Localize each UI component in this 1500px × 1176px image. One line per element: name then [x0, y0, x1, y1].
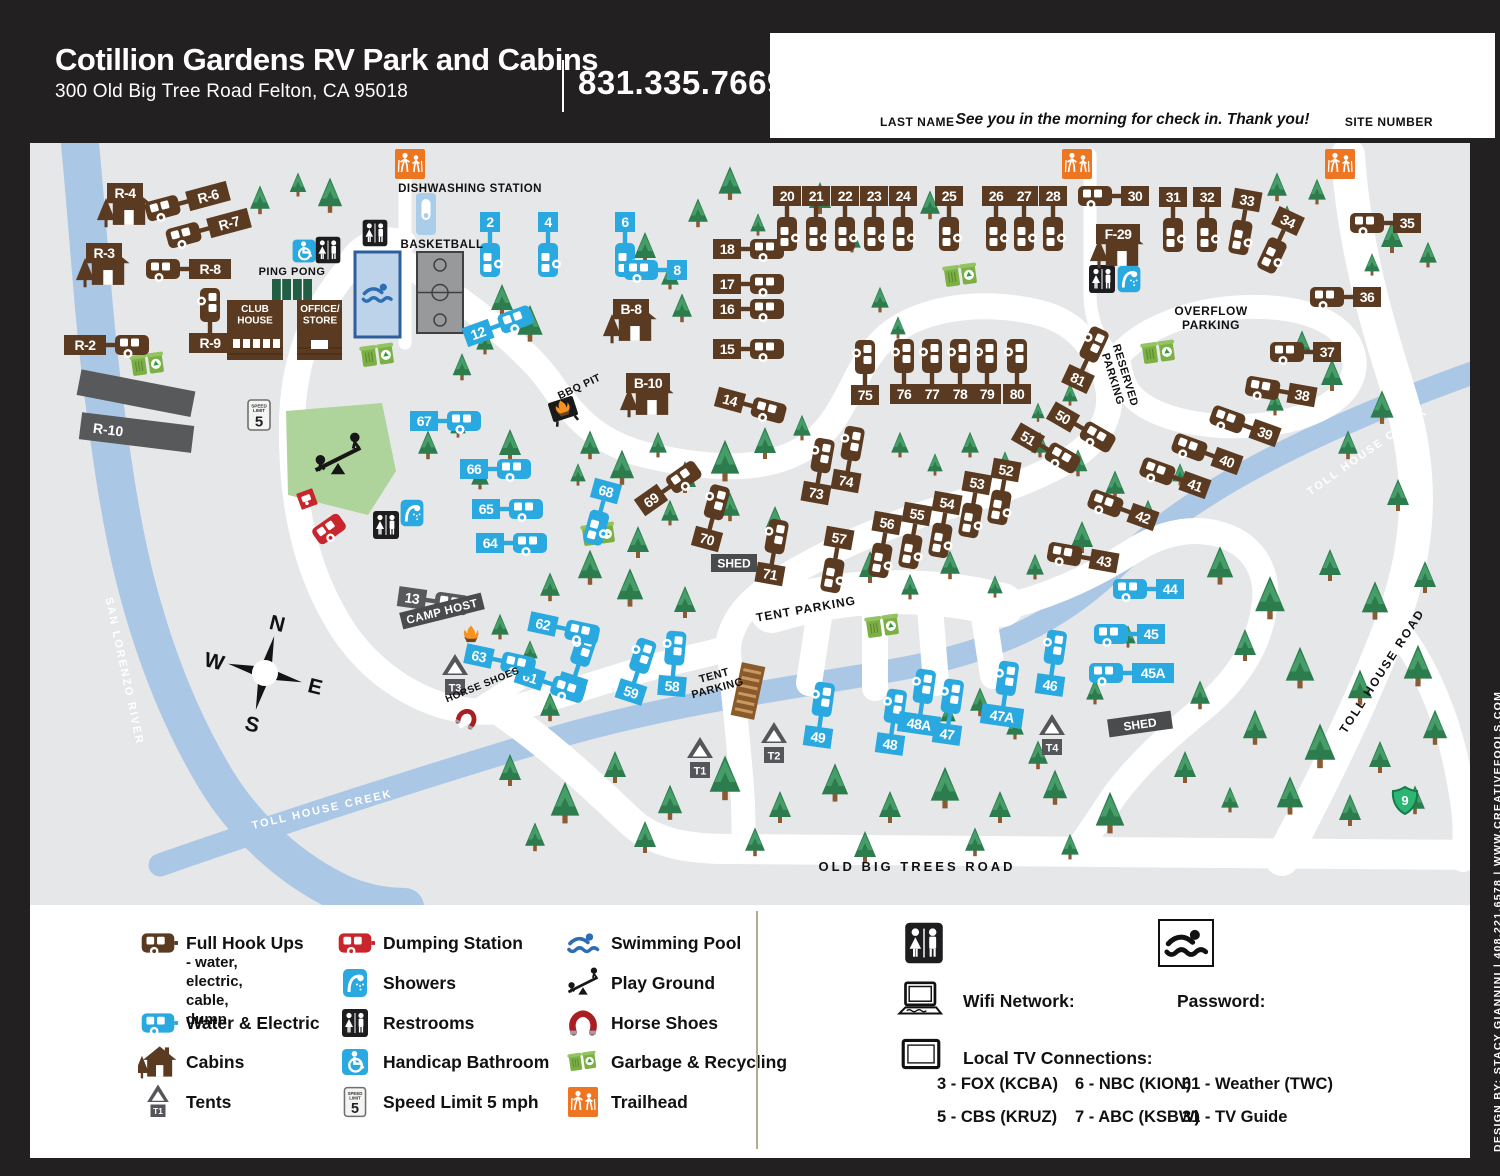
legend-label: Water & Electric — [186, 1003, 320, 1043]
legend-label: Swimming Pool — [611, 923, 741, 963]
svg-text:PARKING: PARKING — [1182, 318, 1240, 332]
tv-glyph — [903, 1040, 939, 1067]
park-phone: 831.335.7669 — [578, 64, 786, 102]
seesaw-icon — [563, 963, 603, 1003]
svg-text:15: 15 — [720, 341, 735, 357]
svg-text:R-2: R-2 — [74, 337, 96, 353]
shower-icon — [1118, 266, 1141, 293]
svg-text:35: 35 — [1400, 215, 1415, 231]
horseshoe-icon — [563, 1003, 603, 1043]
svg-text:37: 37 — [1320, 344, 1335, 360]
svg-text:76: 76 — [897, 386, 912, 402]
legend-label: Handicap Bathroom — [383, 1042, 549, 1082]
legend-label: Trailhead — [611, 1082, 688, 1122]
design-credit: DESIGN BY: STACY GIANNINI | 408.221.6578… — [1492, 691, 1500, 1152]
svg-text:T1: T1 — [153, 1106, 163, 1116]
svg-text:5: 5 — [255, 414, 263, 431]
tv-connection: 61 - Weather (TWC) — [1182, 1075, 1333, 1094]
svg-text:49: 49 — [810, 728, 827, 746]
svg-text:78: 78 — [953, 386, 968, 402]
svg-text:R-3: R-3 — [93, 245, 115, 261]
svg-text:PING PONG: PING PONG — [259, 266, 326, 278]
svg-text:BASKETBALL: BASKETBALL — [401, 239, 484, 251]
svg-text:79: 79 — [980, 386, 995, 402]
park-title: Cotillion Gardens RV Park and Cabins — [55, 42, 598, 78]
tv-connection: 3 - FOX (KCBA) — [937, 1075, 1058, 1094]
svg-text:OLD BIG TREES ROAD: OLD BIG TREES ROAD — [818, 859, 1015, 874]
tv-connection: 31 - TV Guide — [1182, 1108, 1287, 1127]
svg-text:45: 45 — [1144, 626, 1159, 642]
svg-text:28: 28 — [1046, 188, 1061, 204]
svg-text:77: 77 — [925, 386, 940, 402]
tv-icon — [898, 1033, 944, 1075]
legend-label: Play Ground — [611, 963, 715, 1003]
label-basketball: BASKETBALL — [401, 239, 484, 251]
shower-icon — [343, 969, 367, 997]
restroom-icon — [905, 923, 943, 963]
svg-text:6: 6 — [621, 214, 629, 230]
svg-text:OVERFLOW: OVERFLOW — [1174, 304, 1248, 318]
dishwashing-station-icon — [416, 193, 436, 235]
trailer-brown-icon — [138, 923, 178, 963]
swimming-pool — [355, 252, 400, 337]
site-number-label: SITE NUMBER — [1345, 115, 1433, 129]
svg-text:75: 75 — [858, 387, 873, 403]
speed-icon: SPEEDLIMIT5 — [335, 1082, 375, 1122]
svg-text:36: 36 — [1360, 289, 1375, 305]
svg-text:66: 66 — [467, 461, 482, 477]
label-ping-pong: PING PONG — [259, 266, 326, 278]
legend-label: Restrooms — [383, 1003, 474, 1043]
cabin-icon — [138, 1042, 178, 1082]
svg-text:SHED: SHED — [717, 557, 751, 571]
trailer-blue-icon — [138, 1003, 178, 1043]
svg-text:5: 5 — [351, 1101, 359, 1117]
handicap-icon — [342, 1049, 368, 1075]
restroom-icon — [335, 1003, 375, 1043]
road-label-old-big-trees-road: OLD BIG TREES ROAD — [818, 859, 1015, 874]
svg-text:67: 67 — [417, 413, 432, 429]
legend-label: Cabins — [186, 1042, 244, 1082]
legend-label: Garbage & Recycling — [611, 1042, 787, 1082]
speed-limit-sign: SPEEDLIMIT5 — [344, 1088, 365, 1117]
laptop-icon — [892, 975, 946, 1025]
tv-title: Local TV Connections: — [963, 1048, 1153, 1069]
password-label: Password: — [1177, 991, 1266, 1012]
svg-text:13: 13 — [404, 589, 421, 607]
swimming-pool-box-icon — [1158, 919, 1214, 967]
svg-text:20: 20 — [780, 188, 795, 204]
svg-text:45A: 45A — [1141, 665, 1166, 681]
svg-text:64: 64 — [483, 535, 498, 551]
shower-icon — [401, 500, 424, 527]
checkin-message: See you in the morning for check in. Tha… — [956, 111, 1310, 129]
shower-icon — [335, 963, 375, 1003]
basketball-court — [417, 252, 463, 333]
laptop-glyph — [899, 983, 941, 1014]
svg-text:CLUBHOUSE: CLUBHOUSE — [237, 304, 273, 327]
tv-connection: 6 - NBC (KION) — [1075, 1075, 1191, 1094]
svg-text:47: 47 — [939, 725, 956, 743]
svg-text:LIMIT: LIMIT — [253, 408, 265, 413]
restrooms-icon — [902, 921, 946, 965]
wifi-label: Wifi Network: — [963, 991, 1075, 1012]
svg-text:32: 32 — [1200, 189, 1215, 205]
svg-text:R-9: R-9 — [199, 335, 221, 351]
svg-text:26: 26 — [989, 188, 1004, 204]
trailhead-icon — [563, 1082, 603, 1122]
tent-icon: T1 — [138, 1082, 178, 1122]
playground-seesaw-icon — [568, 967, 597, 994]
svg-text:8: 8 — [673, 262, 681, 278]
svg-text:R-4: R-4 — [114, 185, 136, 201]
svg-text:T4: T4 — [1046, 743, 1060, 755]
svg-text:24: 24 — [896, 188, 911, 204]
svg-text:T2: T2 — [768, 751, 781, 763]
handicap-icon — [293, 240, 316, 263]
trailhead-icon — [395, 149, 425, 179]
swim-icon — [563, 923, 603, 963]
svg-text:16: 16 — [720, 301, 735, 317]
trailer-red-icon — [335, 923, 375, 963]
svg-text:B-10: B-10 — [634, 375, 663, 391]
svg-text:25: 25 — [942, 188, 957, 204]
svg-text:F-29: F-29 — [1105, 226, 1133, 242]
svg-text:31: 31 — [1166, 189, 1181, 205]
svg-text:R-8: R-8 — [199, 261, 221, 277]
trailhead-icon — [1062, 149, 1092, 179]
svg-text:44: 44 — [1163, 581, 1178, 597]
svg-text:30: 30 — [1128, 188, 1143, 204]
garbage-recycling-icon — [567, 1051, 597, 1072]
svg-text:47A: 47A — [989, 707, 1016, 726]
restroom-icon — [342, 1009, 368, 1037]
legend-label: Showers — [383, 963, 456, 1003]
horseshoe-icon — [570, 1014, 596, 1035]
trailhead-icon — [1325, 149, 1355, 179]
park-map-poster: Cotillion Gardens RV Park and Cabins 300… — [0, 0, 1500, 1176]
svg-text:DISHWASHING STATION: DISHWASHING STATION — [398, 183, 542, 195]
svg-text:9: 9 — [1401, 793, 1408, 808]
svg-text:T1: T1 — [694, 766, 707, 778]
legend-divider — [756, 911, 758, 1149]
tv-connection: 5 - CBS (KRUZ) — [937, 1108, 1057, 1127]
svg-text:58: 58 — [664, 678, 681, 695]
park-map: R-10SPEEDLIMIT52468121314151617182021222… — [30, 143, 1470, 905]
svg-text:48: 48 — [882, 735, 899, 753]
svg-text:21: 21 — [809, 188, 824, 204]
restroom-icon — [363, 220, 388, 247]
svg-text:2: 2 — [486, 214, 494, 230]
swimmer-icon — [569, 933, 598, 951]
handicap-icon — [335, 1042, 375, 1082]
garbage-icon — [563, 1042, 603, 1082]
checkin-box: LAST NAME See you in the morning for che… — [770, 33, 1495, 138]
swimmer-icon — [1167, 930, 1206, 955]
svg-text:80: 80 — [1010, 386, 1025, 402]
label-overflow-parking: OVERFLOWPARKING — [1174, 304, 1248, 332]
legend-label: Tents — [186, 1082, 231, 1122]
restroom-icon — [373, 511, 399, 539]
legend-label: Speed Limit 5 mph — [383, 1082, 539, 1122]
map-canvas: R-10SPEEDLIMIT52468121314151617182021222… — [30, 143, 1470, 905]
svg-text:27: 27 — [1017, 188, 1032, 204]
svg-text:22: 22 — [838, 188, 853, 204]
legend: Full Hook Ups- water, electric, cable, d… — [30, 905, 1470, 1158]
svg-text:17: 17 — [720, 276, 735, 292]
legend-label: Horse Shoes — [611, 1003, 718, 1043]
svg-text:65: 65 — [479, 501, 494, 517]
svg-text:48A: 48A — [906, 715, 933, 734]
svg-text:46: 46 — [1042, 676, 1059, 694]
svg-text:18: 18 — [720, 241, 735, 257]
svg-text:OFFICE/STORE: OFFICE/STORE — [300, 304, 340, 327]
legend-label: Dumping Station — [383, 923, 523, 963]
cabin-F-29: F-29 — [1090, 224, 1144, 268]
shed-label: SHED — [711, 554, 757, 572]
cabin-B-10: B-10 — [620, 373, 674, 417]
restroom-icon — [1089, 265, 1115, 293]
restroom-icon — [316, 237, 341, 264]
svg-text:23: 23 — [867, 188, 882, 204]
last-name-label: LAST NAME — [880, 115, 955, 129]
header-divider — [562, 60, 564, 112]
speed-limit-sign: SPEEDLIMIT5 — [248, 400, 270, 431]
svg-text:LIMIT: LIMIT — [349, 1095, 361, 1100]
svg-text:B-8: B-8 — [620, 301, 642, 317]
svg-text:4: 4 — [544, 214, 552, 230]
label-dishwashing-station: DISHWASHING STATION — [398, 183, 542, 195]
trailhead-icon — [568, 1087, 598, 1117]
